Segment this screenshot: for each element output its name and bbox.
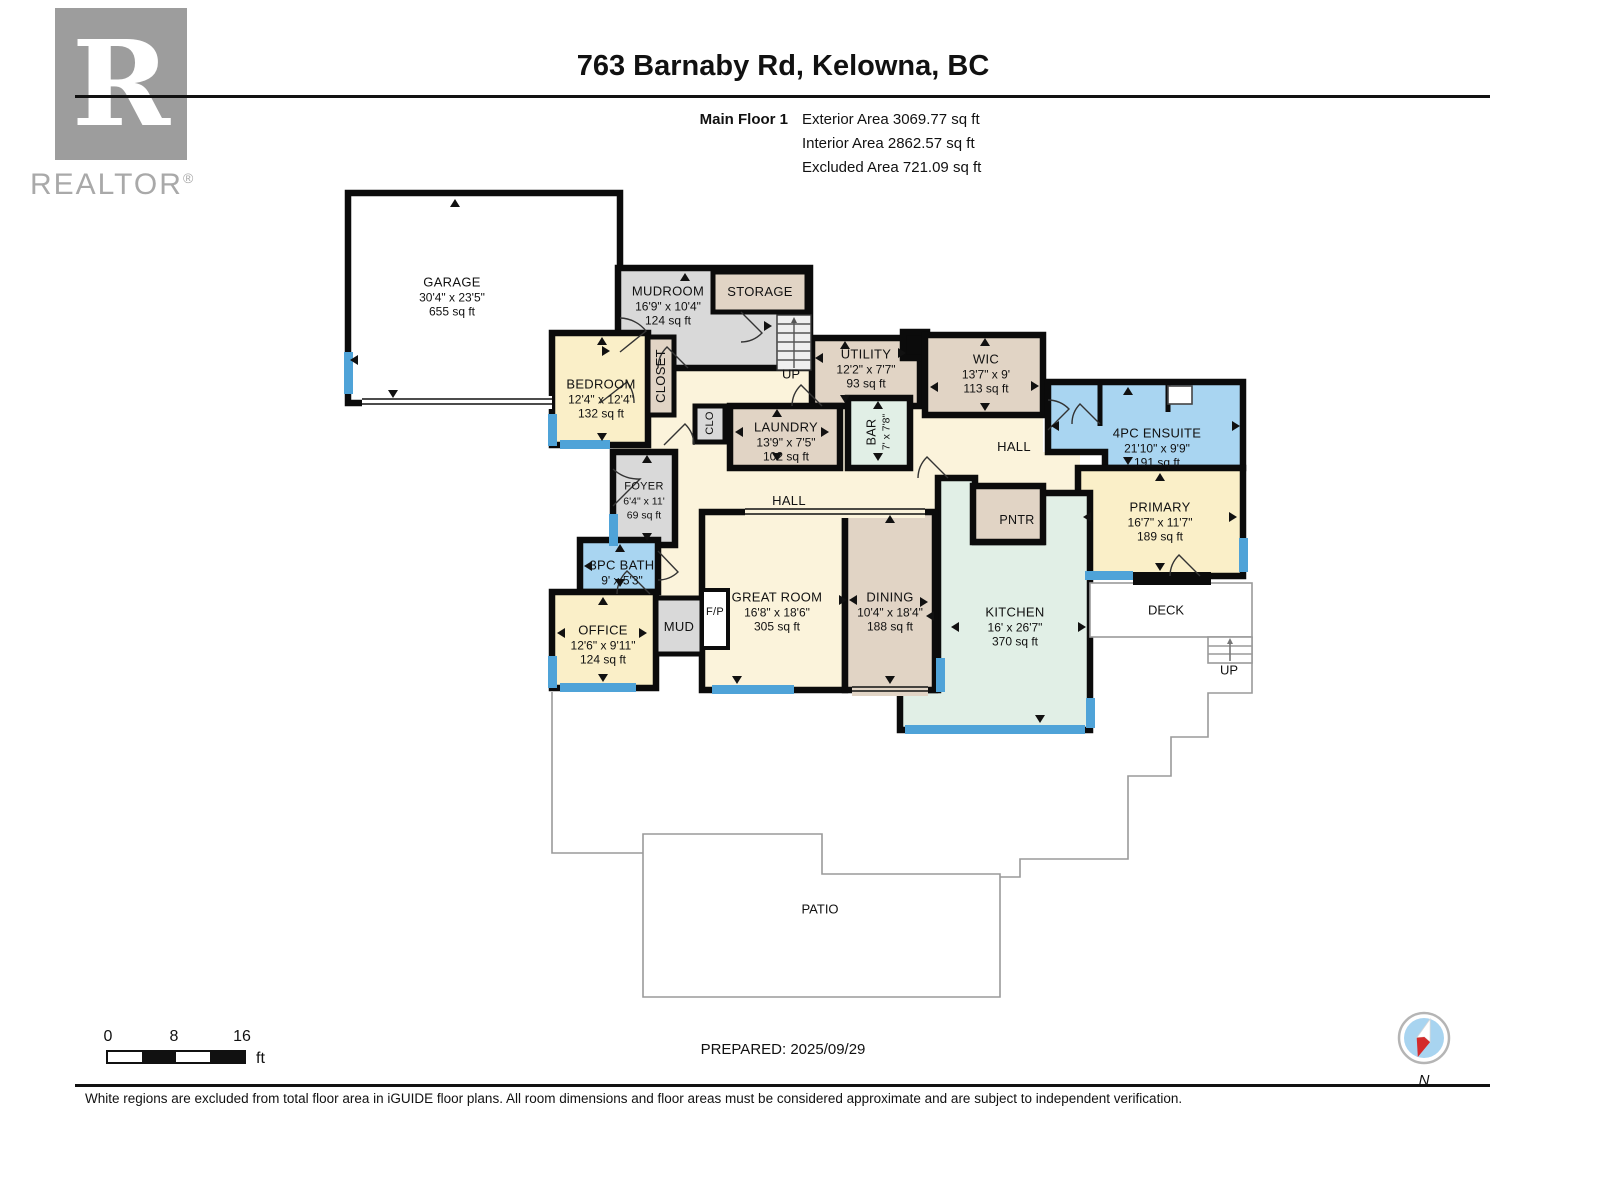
footer-rule (75, 1084, 1490, 1087)
up-label-deck: UP (1220, 663, 1238, 678)
prepared-date: PREPARED: 2025/09/29 (0, 1041, 1566, 1058)
main-stairs (777, 315, 811, 370)
room-label-kitchen: KITCHEN 16' x 26'7" 370 sq ft (985, 605, 1044, 649)
room-label-mudroom: MUDROOM 16'9" x 10'4" 124 sq ft (632, 284, 704, 328)
room-label-bath3pc: 3PC BATH 9' x 5'3" (589, 559, 654, 588)
room-label-hall-upper: HALL (997, 440, 1031, 455)
room-label-pntr: PNTR (999, 513, 1034, 528)
room-label-storage: STORAGE (727, 285, 792, 300)
registered-mark: ® (183, 170, 195, 186)
page-title: 763 Barnaby Rd, Kelowna, BC (0, 50, 1566, 83)
room-label-laundry: LAUNDRY 13'9" x 7'5" 102 sq ft (754, 420, 818, 464)
room-label-hall-main: HALL (772, 494, 806, 509)
excluded-left (552, 692, 643, 853)
realtor-logo-letter: R (72, 25, 170, 143)
room-label-bedroom: BEDROOM 12'4" x 12'4" 132 sq ft (566, 377, 635, 421)
room-label-closet: CLOSET (654, 349, 669, 403)
floor-stats: Exterior Area 3069.77 sq ft Interior Are… (802, 108, 981, 180)
exterior-area: Exterior Area 3069.77 sq ft (802, 108, 981, 132)
disclaimer-text: White regions are excluded from total fl… (85, 1091, 1535, 1106)
deck-wall (1133, 572, 1211, 585)
room-label-clo: CLO (703, 411, 718, 435)
room-label-utility: UTILITY 12'2" x 7'7" 93 sq ft (836, 347, 895, 391)
room-label-primary: PRIMARY 16'7" x 11'7" 189 sq ft (1128, 500, 1193, 544)
deck-label: DECK (1148, 603, 1184, 618)
excluded-area: Excluded Area 721.09 sq ft (802, 156, 981, 180)
up-label-main: UP (782, 367, 800, 382)
room-label-mud: MUD (664, 620, 695, 635)
room-label-office: OFFICE 12'6" x 9'11" 124 sq ft (571, 623, 636, 667)
room-label-wic: WIC 13'7" x 9' 113 sq ft (962, 352, 1010, 396)
room-label-greatroom: GREAT ROOM 16'8" x 18'6" 305 sq ft (732, 590, 823, 634)
realtor-logo: R (55, 8, 187, 160)
room-label-garage: GARAGE 30'4" x 23'5" 655 sq ft (419, 275, 485, 319)
title-rule (75, 95, 1490, 98)
room-label-fp: F/P (706, 605, 724, 620)
realtor-logo-text: REALTOR® (30, 168, 195, 202)
patio-label: PATIO (801, 902, 838, 917)
interior-area: Interior Area 2862.57 sq ft (802, 132, 981, 156)
room-label-dining: DINING 10'4" x 18'4" 188 sq ft (857, 590, 923, 634)
floor-label: Main Floor 1 (560, 108, 788, 132)
room-label-ensuite: 4PC ENSUITE 21'10" x 9'9" 191 sq ft (1113, 426, 1202, 470)
room-label-bar: BAR 7' x 7'8" (865, 414, 894, 450)
room-label-foyer: FOYER 6'4" x 11' 69 sq ft (623, 479, 664, 523)
floorplan-page: R REALTOR® 763 Barnaby Rd, Kelowna, BC M… (0, 0, 1600, 1200)
